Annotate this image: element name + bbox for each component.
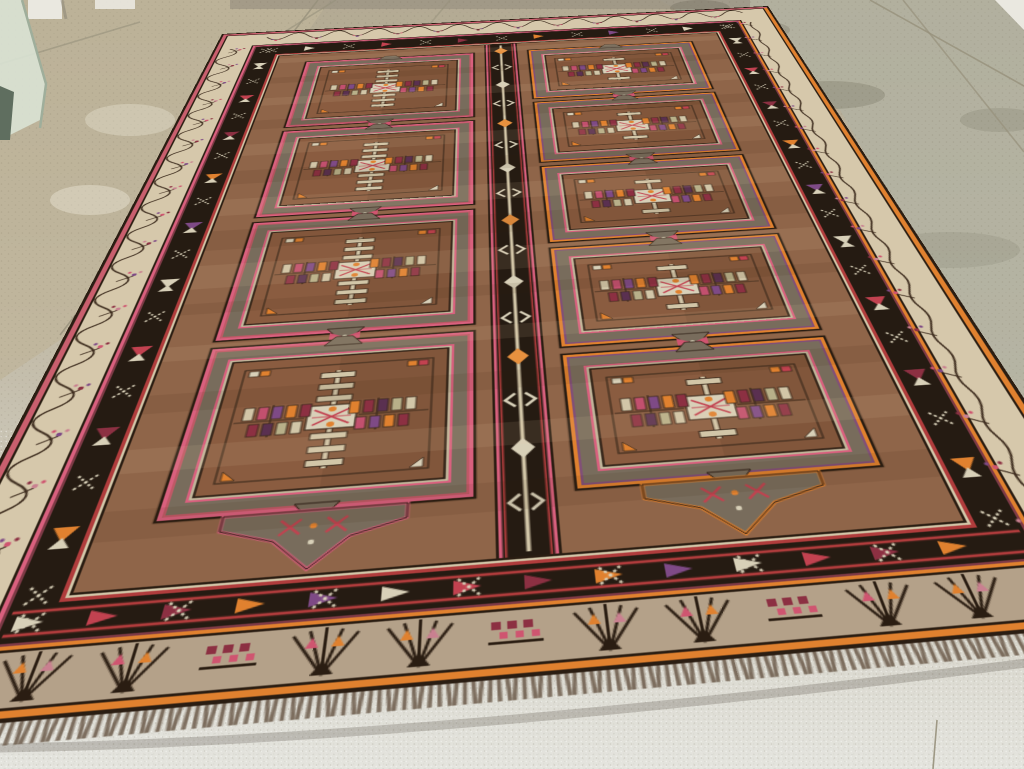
photo-antique-rug-showroom (0, 0, 1024, 769)
